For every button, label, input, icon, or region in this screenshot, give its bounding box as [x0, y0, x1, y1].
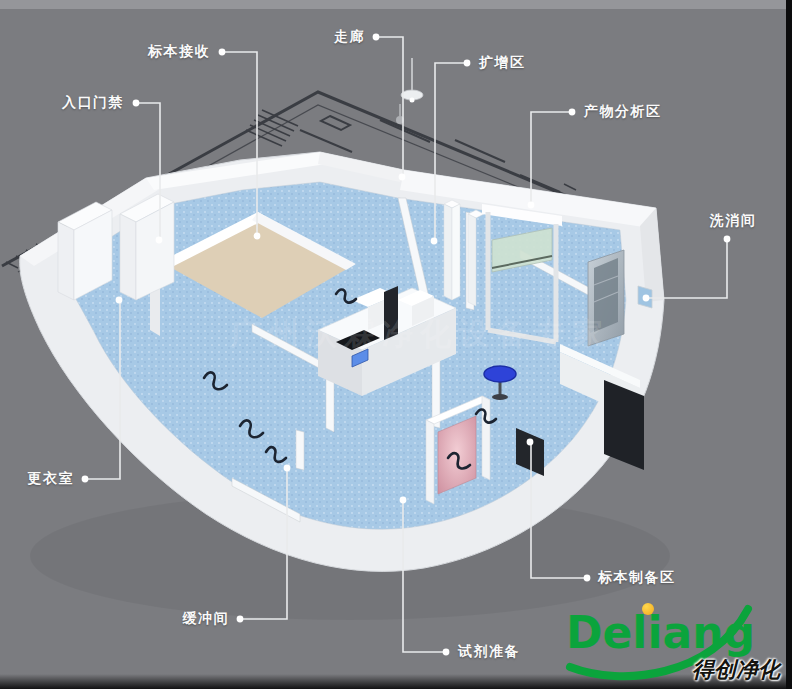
room-label-washing-room: 洗消间 [710, 212, 757, 230]
room-label-buffer-room: 缓冲间 [183, 610, 230, 628]
room-label-amplification-area: 扩增区 [479, 54, 526, 72]
room-label-changing-room: 更衣室 [28, 470, 75, 488]
logo: Deliang 得创净化 [566, 595, 780, 685]
logo-brand-text: Deliang [566, 611, 755, 655]
watermark-text: 广州沃霖净化设备专家 [230, 313, 610, 355]
room-label-specimen-receiving: 标本接收 [148, 43, 210, 61]
top-light-strip [0, 0, 792, 9]
lab-rendering-scene: 标本接收入口门禁走廊扩增区产物分析区洗消间更衣室缓冲间试剂准备标本制备区 广州沃… [0, 0, 792, 689]
wall-window [638, 286, 652, 308]
room-label-reagent-prep: 试剂准备 [458, 643, 520, 661]
right-border [786, 0, 792, 689]
logo-orange-dot-icon [642, 603, 654, 615]
room-label-corridor: 走廊 [334, 28, 365, 46]
room-label-product-analysis-area: 产物分析区 [584, 103, 662, 121]
logo-tagline-text: 得创净化 [692, 655, 780, 685]
room-label-entrance-access: 入口门禁 [62, 94, 124, 112]
